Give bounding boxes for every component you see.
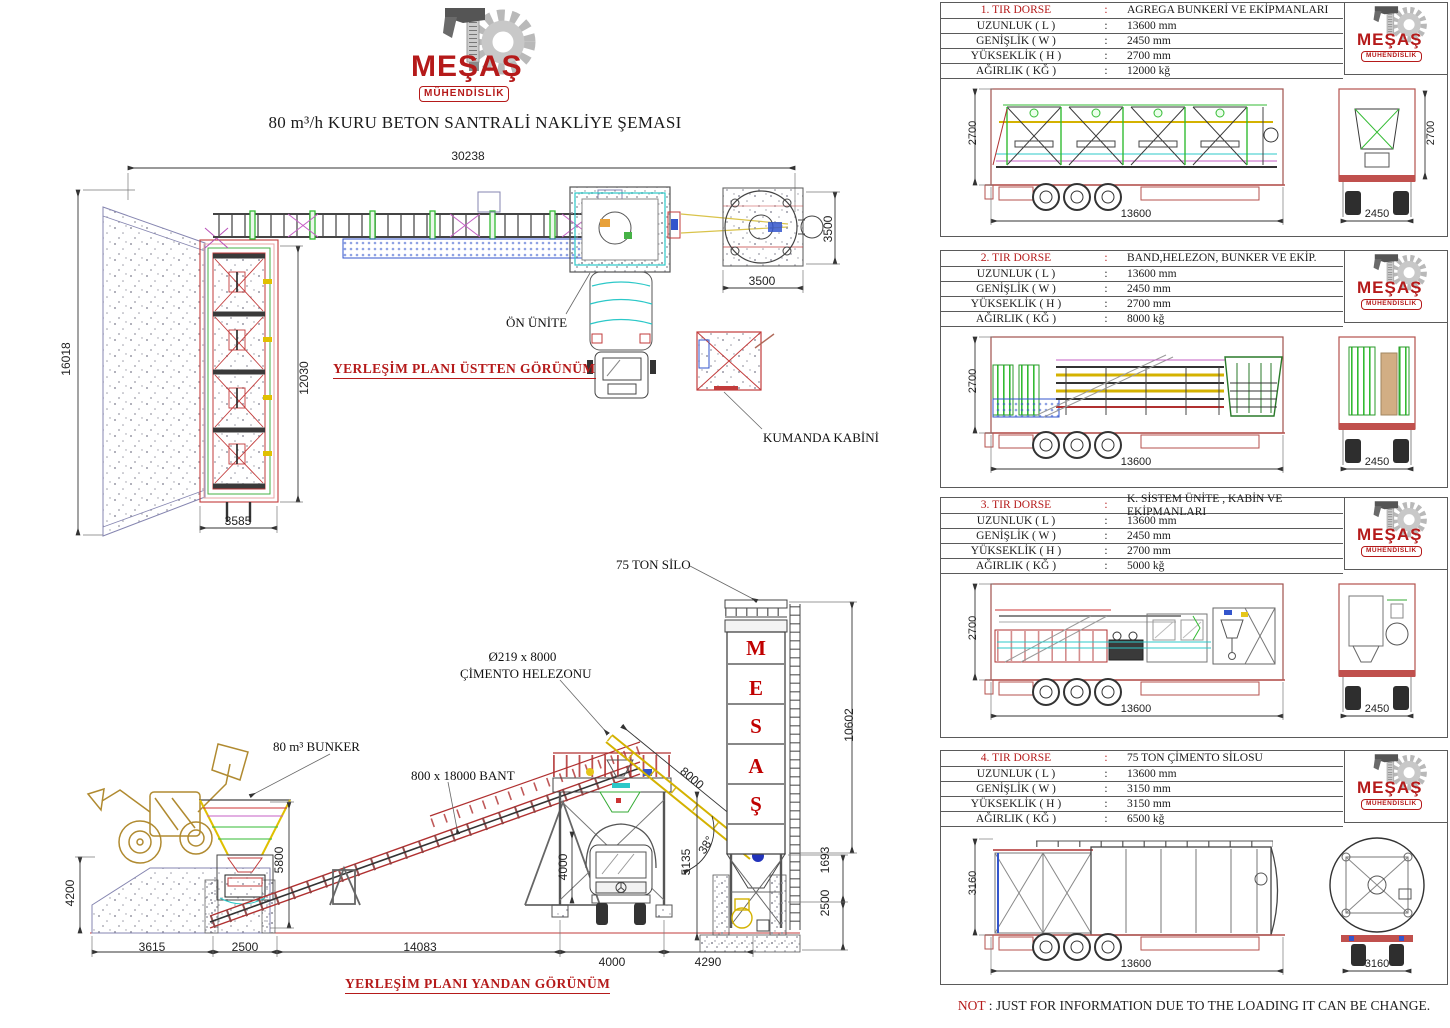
colon: : <box>1091 268 1121 281</box>
table-row: YÜKSEKLİK ( H ):2700 mm <box>941 297 1343 312</box>
colon: : <box>1091 35 1121 48</box>
dim-ramp-length: 3615 <box>117 940 187 954</box>
panel-trailer-2: 2. TIR DORSE:BAND,HELEZON, BUNKER VE EKİ… <box>940 250 1448 488</box>
logo-subtitle: MÜHENDİSLİK <box>419 86 509 102</box>
ramp-plan <box>103 207 205 536</box>
spec-table-4: 4. TIR DORSE:75 TON ÇİMENTO SİLOSU UZUNL… <box>941 751 1343 827</box>
row-label: 2. TIR DORSE <box>941 252 1091 265</box>
row-value: AGREGA BUNKERİ VE EKİPMANLARI <box>1121 4 1343 17</box>
row-value: 2700 mm <box>1121 50 1343 63</box>
dim-trailer-width: 2450 <box>1335 456 1419 468</box>
sheet-title: 80 m³/h KURU BETON SANTRALİ NAKLİYE ŞEMA… <box>170 113 780 133</box>
table-row: GENİŞLİK ( W ):2450 mm <box>941 34 1343 49</box>
panel-drawing-1: 2700 13600 2450 2700 <box>941 75 1447 236</box>
row-label: YÜKSEKLİK ( H ) <box>941 298 1091 311</box>
colon: : <box>1091 768 1121 781</box>
colon: : <box>1091 283 1121 296</box>
label-control-cabin: KUMANDA KABİNİ <box>763 430 879 446</box>
row-label: GENİŞLİK ( W ) <box>941 530 1091 543</box>
panel-drawing-4: 3160 13600 3160 <box>941 823 1447 984</box>
label-screw-1: Ø219 x 8000 <box>465 649 580 665</box>
row-label: 1. TIR DORSE <box>941 4 1091 17</box>
row-label: 4. TIR DORSE <box>941 752 1091 765</box>
dim-rear-height: 2700 <box>1425 103 1437 163</box>
label-screw-2: ÇİMENTO HELEZONU <box>460 666 590 682</box>
row-label: UZUNLUK ( L ) <box>941 768 1091 781</box>
logo-brand: MEŞAŞ <box>1357 31 1422 48</box>
row-value: 2450 mm <box>1121 35 1343 48</box>
table-row: UZUNLUK ( L ):13600 mm <box>941 767 1343 782</box>
colon: : <box>1091 783 1121 796</box>
panel-logo-2: MEŞAŞ MÜHENDİSLİK <box>1344 251 1447 323</box>
table-row: UZUNLUK ( L ):13600 mm <box>941 267 1343 282</box>
table-row: UZUNLUK ( L ):13600 mm <box>941 19 1343 34</box>
colon: : <box>1091 4 1121 17</box>
spec-table-3: 3. TIR DORSE:K. SİSTEM ÜNİTE , KABİN VE … <box>941 498 1343 574</box>
colon: : <box>1091 545 1121 558</box>
label-front-unit: ÖN ÜNİTE <box>506 315 567 331</box>
panel-logo-4: MEŞAŞ MÜHENDİSLİK <box>1344 751 1447 823</box>
row-label: YÜKSEKLİK ( H ) <box>941 545 1091 558</box>
table-row: GENİŞLİK ( W ):2450 mm <box>941 282 1343 297</box>
colon: : <box>1091 798 1121 811</box>
row-value: 2700 mm <box>1121 545 1343 558</box>
colon: : <box>1091 20 1121 33</box>
row-value: BAND,HELEZON, BUNKER VE EKİP. <box>1121 252 1343 265</box>
row-label: UZUNLUK ( L ) <box>941 20 1091 33</box>
front-unit-plan <box>570 187 680 272</box>
dim-trailer-length: 13600 <box>1071 208 1201 220</box>
label-bunker: 80 m³ BUNKER <box>273 739 360 755</box>
silo-letter-2: E <box>744 678 768 699</box>
table-row: 4. TIR DORSE:75 TON ÇİMENTO SİLOSU <box>941 751 1343 767</box>
dim-plant-height: 5135 <box>679 832 693 892</box>
logo-brand: MEŞAŞ <box>1357 779 1422 796</box>
caption-top-view: YERLEŞİM PLANI ÜSTTEN GÖRÜNÜM <box>333 361 596 379</box>
bunker-plan <box>200 228 278 522</box>
dim-site-width: 16018 <box>59 329 73 389</box>
row-value: 75 TON ÇİMENTO SİLOSU <box>1121 752 1343 765</box>
colon: : <box>1091 530 1121 543</box>
table-row: 2. TIR DORSE:BAND,HELEZON, BUNKER VE EKİ… <box>941 251 1343 267</box>
note-prefix: NOT <box>958 998 986 1013</box>
colon: : <box>1091 252 1121 265</box>
logo-brand: MEŞAŞ <box>1357 279 1422 296</box>
dim-trailer-length: 13600 <box>1071 958 1201 970</box>
logo-brand: MEŞAŞ <box>1357 526 1422 543</box>
row-value: 2700 mm <box>1121 298 1343 311</box>
dim-trailer-width: 3160 <box>1335 958 1419 970</box>
dim-trailer-height: 3160 <box>967 853 979 913</box>
panel-logo-3: MEŞAŞ MÜHENDİSLİK <box>1344 498 1447 570</box>
spec-table-2: 2. TIR DORSE:BAND,HELEZON, BUNKER VE EKİ… <box>941 251 1343 327</box>
dim-trailer-width: 2450 <box>1335 208 1419 220</box>
row-value: 13600 mm <box>1121 768 1343 781</box>
row-value: 13600 mm <box>1121 515 1343 528</box>
dim-silo-gap: 4290 <box>673 955 743 969</box>
silo-letter-1: M <box>744 638 768 659</box>
row-value: 2450 mm <box>1121 283 1343 296</box>
row-label: YÜKSEKLİK ( H ) <box>941 50 1091 63</box>
caption-side-view: YERLEŞİM PLANI YANDAN GÖRÜNÜM <box>345 976 610 994</box>
plan-side-view <box>75 566 857 957</box>
dim-trailer-height: 2700 <box>967 103 979 163</box>
row-label: GENİŞLİK ( W ) <box>941 783 1091 796</box>
footer-note: NOT : JUST FOR INFORMATION DUE TO THE LO… <box>940 998 1448 1014</box>
row-label: UZUNLUK ( L ) <box>941 515 1091 528</box>
row-value: 13600 mm <box>1121 20 1343 33</box>
dim-trailer-height: 2700 <box>967 598 979 658</box>
dim-pit-depth: 2500 <box>818 873 832 933</box>
dim-bunker-height: 5800 <box>272 830 286 890</box>
label-belt: 800 x 18000 BANT <box>411 768 515 784</box>
control-cabin-plan <box>697 332 774 390</box>
panel-trailer-4: 4. TIR DORSE:75 TON ÇİMENTO SİLOSU UZUNL… <box>940 750 1448 985</box>
dim-mixer-height: 4000 <box>556 837 570 897</box>
silo-letter-5: Ş <box>744 794 768 815</box>
table-row: YÜKSEKLİK ( H ):2700 mm <box>941 544 1343 559</box>
row-value: 3150 mm <box>1121 798 1343 811</box>
row-value: 2450 mm <box>1121 530 1343 543</box>
dim-bunker-width: 3585 <box>203 514 273 528</box>
plan-top-view <box>78 168 840 536</box>
row-value: 13600 mm <box>1121 268 1343 281</box>
silo-letter-4: A <box>744 756 768 777</box>
table-row: UZUNLUK ( L ):13600 mm <box>941 514 1343 529</box>
silo-letter-3: S <box>744 716 768 737</box>
company-logo: MEŞAŞ MÜHENDİSLİK <box>405 6 565 110</box>
panel-trailer-3: 3. TIR DORSE:K. SİSTEM ÜNİTE , KABİN VE … <box>940 497 1448 738</box>
dim-trailer-height: 2700 <box>967 351 979 411</box>
truck-plan <box>587 272 656 398</box>
drawing-sheet: .d{stroke:#333;stroke-width:.9;marker-st… <box>0 0 1450 1028</box>
dim-trailer-width: 2450 <box>1335 703 1419 715</box>
panel-trailer-1: 1. TIR DORSE:AGREGA BUNKERİ VE EKİPMANLA… <box>940 2 1448 237</box>
row-label: GENİŞLİK ( W ) <box>941 35 1091 48</box>
panel-logo-1: MEŞAŞ MÜHENDİSLİK <box>1344 3 1447 75</box>
table-row: GENİŞLİK ( W ):3150 mm <box>941 782 1343 797</box>
dim-pad-width: 3500 <box>727 274 797 288</box>
table-row: 1. TIR DORSE:AGREGA BUNKERİ VE EKİPMANLA… <box>941 3 1343 19</box>
panel-drawing-2: 2700 13600 2450 <box>941 323 1447 487</box>
label-silo: 75 TON SİLO <box>616 557 691 573</box>
dim-pit-length: 2500 <box>210 940 280 954</box>
logo-subtitle: MÜHENDİSLİK <box>1361 799 1422 810</box>
table-row: 3. TIR DORSE:K. SİSTEM ÜNİTE , KABİN VE … <box>941 498 1343 514</box>
spec-table-1: 1. TIR DORSE:AGREGA BUNKERİ VE EKİPMANLA… <box>941 3 1343 79</box>
dim-pad-height: 3500 <box>821 199 835 259</box>
table-row: YÜKSEKLİK ( H ):3150 mm <box>941 797 1343 812</box>
note-text: : JUST FOR INFORMATION DUE TO THE LOADIN… <box>989 998 1430 1013</box>
dim-belt-length: 14083 <box>380 940 460 954</box>
row-label: YÜKSEKLİK ( H ) <box>941 798 1091 811</box>
dim-silo-height: 10602 <box>842 695 856 755</box>
colon: : <box>1091 515 1121 528</box>
dim-trailer-length: 13600 <box>1071 703 1201 715</box>
dim-trailer-length: 13600 <box>1071 456 1201 468</box>
dim-mixer-width: 4000 <box>577 955 647 969</box>
dim-bunker-length: 12030 <box>297 348 311 408</box>
table-row: GENİŞLİK ( W ):2450 mm <box>941 529 1343 544</box>
row-value: 3150 mm <box>1121 783 1343 796</box>
logo-subtitle: MÜHENDİSLİK <box>1361 299 1422 310</box>
dim-ramp-height: 4200 <box>63 863 77 923</box>
row-label: GENİŞLİK ( W ) <box>941 283 1091 296</box>
colon: : <box>1091 499 1121 512</box>
colon: : <box>1091 298 1121 311</box>
logo-brand: MEŞAŞ <box>411 52 523 82</box>
dim-total-length: 30238 <box>433 149 503 163</box>
table-row: YÜKSEKLİK ( H ):2700 mm <box>941 49 1343 64</box>
logo-subtitle: MÜHENDİSLİK <box>1361 546 1422 557</box>
row-label: UZUNLUK ( L ) <box>941 268 1091 281</box>
row-label: 3. TIR DORSE <box>941 499 1091 512</box>
colon: : <box>1091 50 1121 63</box>
panel-drawing-3: 2700 13600 2450 <box>941 570 1447 737</box>
colon: : <box>1091 752 1121 765</box>
logo-subtitle: MÜHENDİSLİK <box>1361 51 1422 62</box>
silo-pad-plan <box>723 188 823 266</box>
